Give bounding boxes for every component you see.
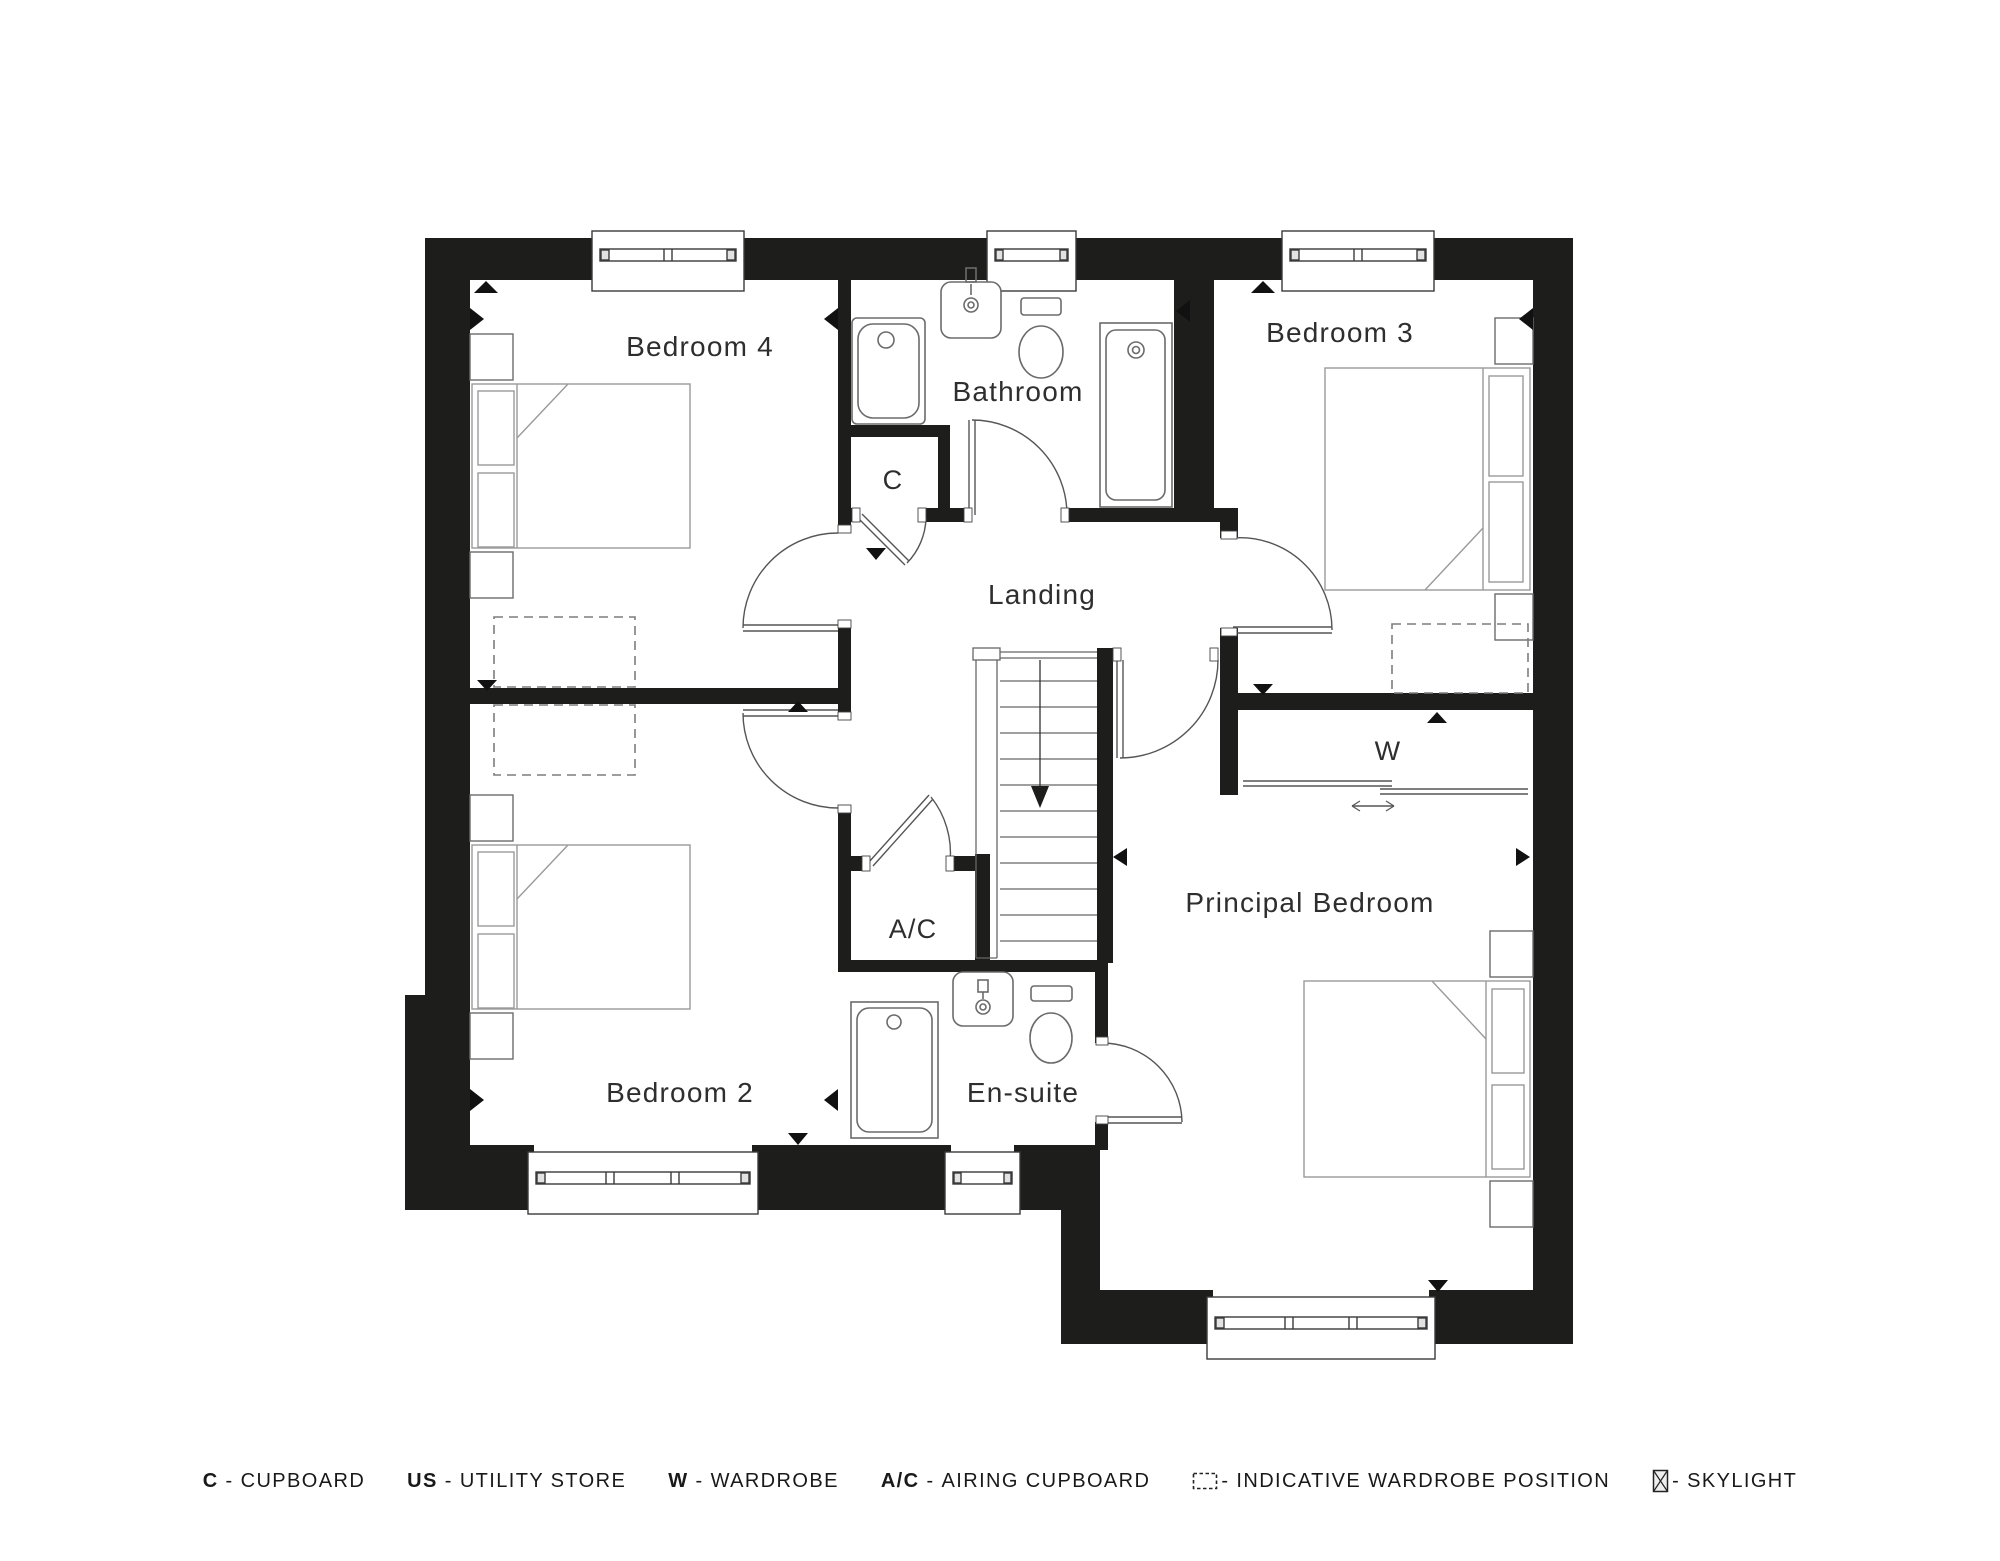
window-bedroom4 <box>592 231 744 291</box>
door-bathroom <box>969 420 1067 515</box>
stairs-down-arrow-icon <box>1031 786 1049 808</box>
door-bedroom3 <box>1233 538 1332 633</box>
label-bedroom2: Bedroom 2 <box>606 1077 754 1108</box>
shower-icon <box>851 1002 938 1138</box>
floor-plan-page: Bedroom 4 Bathroom Bedroom 3 C Landing W… <box>0 0 2000 1561</box>
legend-label: UTILITY STORE <box>460 1466 626 1496</box>
window-bedroom3 <box>1282 231 1434 291</box>
label-bedroom4: Bedroom 4 <box>626 331 774 362</box>
label-cupboard: C <box>883 465 904 495</box>
bathtub-icon <box>852 318 925 424</box>
bed-bedroom2 <box>470 795 690 1059</box>
ensuite-fixtures <box>851 972 1072 1138</box>
legend-label: AIRING CUPBOARD <box>942 1466 1151 1496</box>
bed-bedroom3 <box>1325 318 1533 640</box>
legend: C - CUPBOARD US - UTILITY STORE W - WARD… <box>0 1466 2000 1496</box>
legend-label: SKYLIGHT <box>1687 1466 1797 1496</box>
label-principal-bedroom: Principal Bedroom <box>1185 887 1434 918</box>
floor-plan: Bedroom 4 Bathroom Bedroom 3 C Landing W… <box>0 0 2000 1561</box>
door-airing-cupboard <box>869 795 950 866</box>
legend-label: INDICATIVE WARDROBE POSITION <box>1236 1466 1610 1496</box>
legend-key: US <box>407 1466 438 1496</box>
door-bedroom2 <box>743 710 838 808</box>
legend-item-skylight: - SKYLIGHT <box>1652 1466 1797 1496</box>
legend-label: CUPBOARD <box>241 1466 366 1496</box>
label-wardrobe: W <box>1375 736 1402 766</box>
legend-item-airing-cupboard: A/C - AIRING CUPBOARD <box>881 1466 1151 1496</box>
legend-item-cupboard: C - CUPBOARD <box>203 1466 365 1496</box>
legend-key: C <box>203 1466 219 1496</box>
legend-key: W <box>668 1466 688 1496</box>
label-bathroom: Bathroom <box>953 376 1084 407</box>
label-bedroom3: Bedroom 3 <box>1266 317 1414 348</box>
door-principal <box>1117 660 1218 758</box>
shower-icon <box>1100 323 1172 507</box>
door-ensuite <box>1102 1043 1182 1123</box>
window-ensuite <box>945 1152 1020 1214</box>
toilet-icon <box>1019 298 1063 378</box>
window-bedroom2 <box>528 1152 758 1214</box>
label-ensuite: En-suite <box>967 1077 1079 1108</box>
sink-icon <box>953 972 1013 1026</box>
legend-item-wardrobe: W - WARDROBE <box>668 1466 839 1496</box>
door-cupboard <box>858 514 926 565</box>
window-principal <box>1207 1297 1435 1359</box>
indicative-wardrobe-bedroom4 <box>494 617 635 687</box>
stairs <box>973 648 1097 958</box>
door-bedroom4 <box>743 533 838 631</box>
legend-item-utility-store: US - UTILITY STORE <box>407 1466 626 1496</box>
indicative-wardrobe-icon <box>1192 1472 1218 1490</box>
legend-label: WARDROBE <box>711 1466 839 1496</box>
label-landing: Landing <box>988 579 1096 610</box>
toilet-icon <box>1030 986 1072 1063</box>
window-bathroom <box>987 231 1076 291</box>
skylight-icon <box>1652 1469 1669 1493</box>
indicative-wardrobe-bedroom2 <box>494 705 635 775</box>
bed-principal <box>1304 931 1533 1227</box>
legend-key: A/C <box>881 1466 920 1496</box>
label-airing-cupboard: A/C <box>889 914 938 944</box>
legend-item-indicative-wardrobe: - INDICATIVE WARDROBE POSITION <box>1192 1466 1610 1496</box>
door-wardrobe-sliding <box>1243 781 1528 811</box>
bed-bedroom4 <box>470 334 690 598</box>
